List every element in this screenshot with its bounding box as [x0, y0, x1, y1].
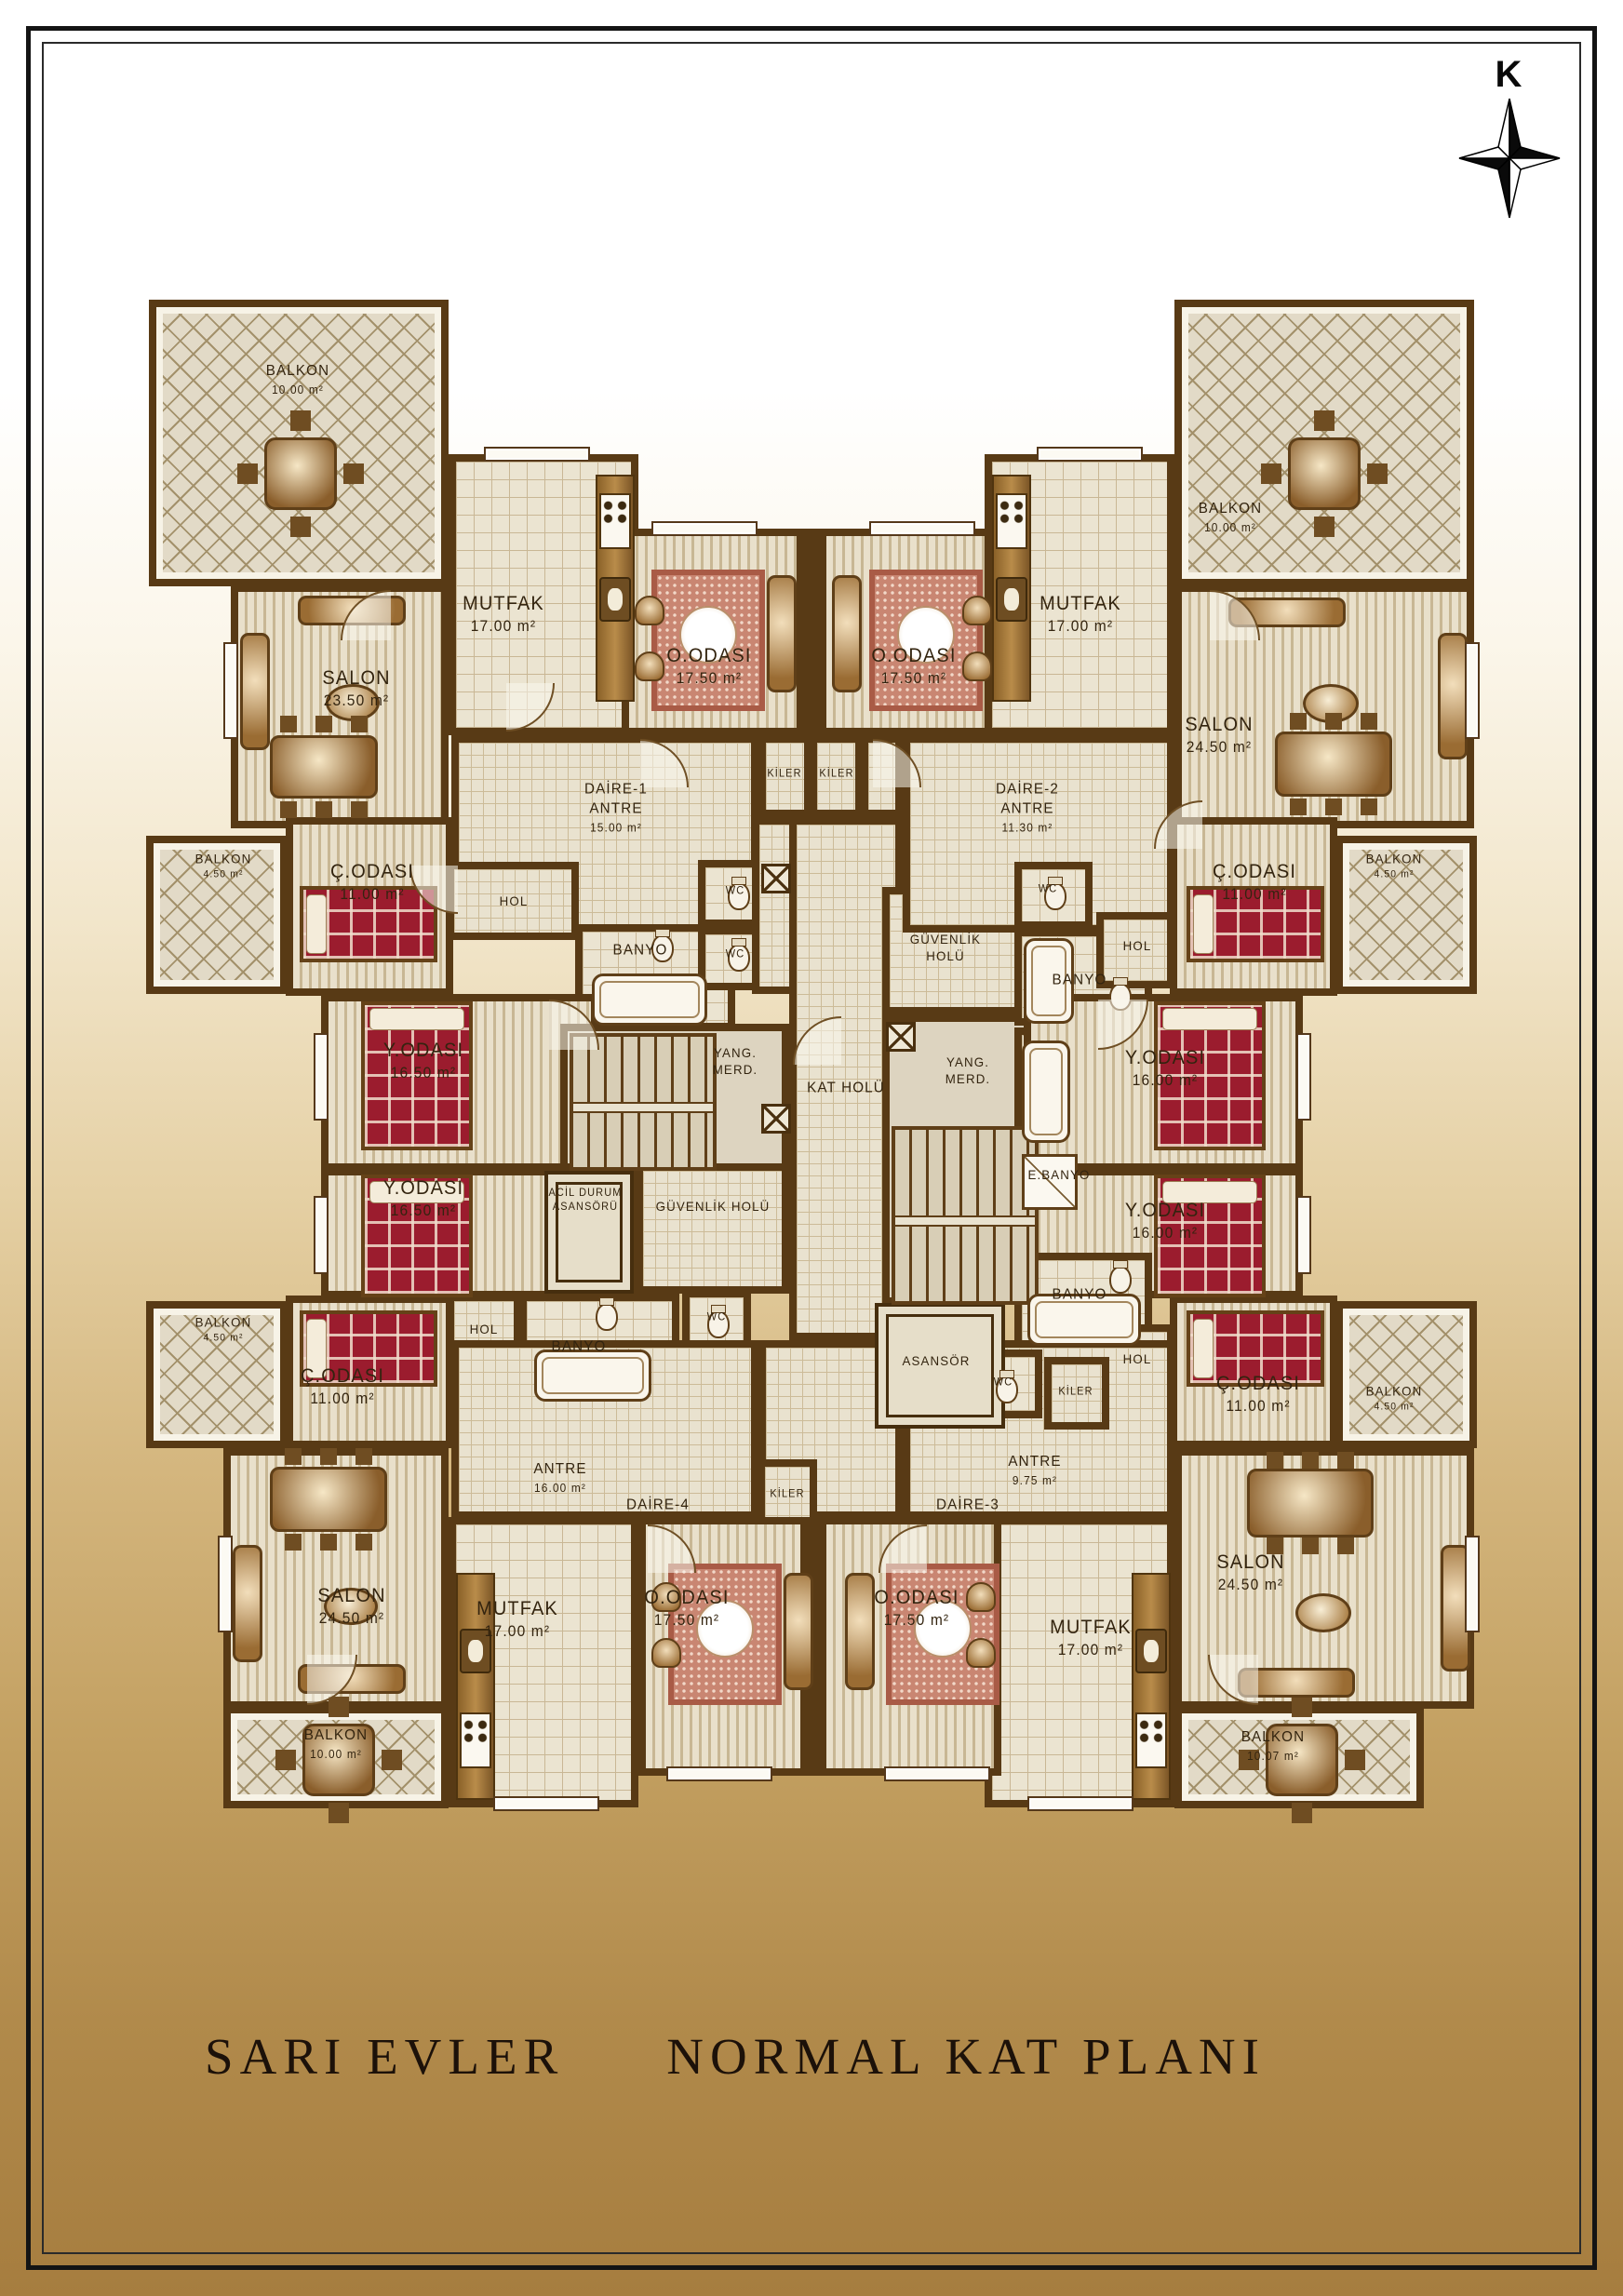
- room-label-wc-d4: WC: [707, 1311, 726, 1325]
- sofa: [784, 1573, 813, 1690]
- room-label-kat-holu: KAT HOLÜ: [807, 1080, 885, 1099]
- stove: [460, 1712, 491, 1768]
- room-label-mutfak-tl: MUTFAK17.00 m²: [463, 591, 544, 638]
- bathtub: [592, 973, 707, 1026]
- room-label-guvenlik-r: GÜVENLİKHOLÜ: [910, 931, 981, 964]
- room-label-salon-bl: SALON24.50 m²: [317, 1583, 385, 1630]
- room-label-y-odasi-r2: Y.ODASI16.00 m²: [1125, 1198, 1205, 1244]
- stove: [996, 493, 1027, 549]
- room-label-c-odasi-l2: Ç.ODASI11.00 m²: [301, 1363, 384, 1410]
- compass-star-icon: [1454, 93, 1565, 223]
- room-label-kiler-4: KİLER: [770, 1488, 804, 1502]
- room-label-wc-d1a: WC: [726, 885, 744, 899]
- carpet: [651, 570, 765, 711]
- room-label-hol-d1: HOL: [500, 893, 529, 909]
- window: [869, 521, 975, 536]
- room-label-salon-br: SALON24.50 m²: [1216, 1550, 1284, 1596]
- room-balkon-r2: [1335, 1301, 1477, 1448]
- armchair: [651, 1638, 681, 1668]
- window: [666, 1766, 772, 1781]
- room-label-balkon-r1: BALKON4.50 m²: [1366, 850, 1423, 880]
- room-label-antre-1: DAİRE-1ANTRE15.00 m²: [584, 781, 648, 836]
- room-label-daire-3: DAİRE-3: [936, 1497, 999, 1516]
- room-label-o-odasi-br: O.ODASI17.50 m²: [874, 1585, 959, 1631]
- armchair: [962, 596, 992, 625]
- room-label-hol-d3: HOL: [1123, 1350, 1152, 1367]
- room-label-asansor: ASANSÖR: [902, 1352, 970, 1369]
- room-label-y-odasi-r1: Y.ODASI16.00 m²: [1125, 1045, 1205, 1092]
- armchair: [966, 1582, 996, 1612]
- room-label-balkon-l2: BALKON4.50 m²: [195, 1313, 252, 1344]
- toilet: [1109, 1266, 1132, 1294]
- salon-dining-table: [1247, 1469, 1374, 1537]
- stove: [599, 493, 631, 549]
- room-label-salon-tr: SALON24.50 m²: [1185, 712, 1253, 759]
- window: [1296, 1033, 1311, 1121]
- window: [1465, 642, 1480, 739]
- room-label-daire-4: DAİRE-4: [626, 1497, 690, 1516]
- kitchen-sink: [599, 577, 631, 622]
- room-label-banyo-d1: BANYO: [613, 942, 668, 961]
- room-label-mutfak-br: MUTFAK17.00 m²: [1050, 1615, 1132, 1661]
- dining-table: [1288, 437, 1361, 510]
- room-label-c-odasi-l1: Ç.ODASI11.00 m²: [330, 859, 414, 906]
- room-label-wc-d3: WC: [994, 1376, 1013, 1390]
- kitchen-sink: [996, 577, 1027, 622]
- room-label-balkon-tr: BALKON10.00 m²: [1199, 500, 1263, 535]
- window: [884, 1766, 990, 1781]
- window: [1465, 1536, 1480, 1632]
- sofa: [767, 575, 797, 692]
- room-label-yang-merd-r: YANG.MERD.: [946, 1054, 991, 1087]
- stove: [1135, 1712, 1167, 1768]
- room-label-banyo-d3: BANYO: [1053, 1286, 1107, 1306]
- poster-canvas: K: [0, 0, 1623, 2296]
- room-label-kiler-3: KİLER: [1058, 1386, 1093, 1400]
- title-project: SARI EVLER: [205, 2027, 564, 2086]
- room-label-y-odasi-l1: Y.ODASI16.50 m²: [383, 1038, 463, 1084]
- carpet: [869, 570, 983, 711]
- room-label-kiler-1: KİLER: [767, 768, 801, 782]
- armchair: [962, 651, 992, 681]
- room-label-antre-3: ANTRE9.75 m²: [1008, 1453, 1061, 1488]
- salon-dining-table: [1275, 732, 1392, 797]
- room-label-wc-d2: WC: [1039, 883, 1057, 897]
- bathtub: [1022, 1041, 1070, 1143]
- sofa: [240, 633, 270, 750]
- room-label-balkon-tl: BALKON10.00 m²: [266, 362, 330, 397]
- window: [493, 1796, 599, 1811]
- room-label-kiler-2: KİLER: [819, 768, 853, 782]
- window: [1296, 1196, 1311, 1274]
- room-guvenlik-holu-l: [636, 1163, 789, 1294]
- sofa: [832, 575, 862, 692]
- coffee-table: [1303, 684, 1359, 723]
- window: [314, 1196, 329, 1274]
- stairs-west: [570, 1033, 717, 1171]
- window: [314, 1033, 329, 1121]
- room-label-acil-asansor: ACİL DURUMASANSÖRÜ: [549, 1187, 623, 1215]
- room-label-antre-4: ANTRE16.00 m²: [533, 1460, 586, 1496]
- salon-dining-table: [270, 735, 378, 799]
- room-label-antre-2: DAİRE-2ANTRE11.30 m²: [996, 781, 1059, 836]
- window: [1037, 447, 1143, 462]
- room-label-c-odasi-r1: Ç.ODASI11.00 m²: [1213, 859, 1296, 906]
- room-label-balkon-r2: BALKON4.50 m²: [1366, 1382, 1423, 1413]
- north-compass: K: [1450, 56, 1569, 223]
- stairs-east: [892, 1126, 1039, 1305]
- window: [651, 521, 758, 536]
- sofa: [233, 1545, 262, 1662]
- room-label-c-odasi-r2: Ç.ODASI11.00 m²: [1216, 1371, 1300, 1417]
- room-label-salon-tl: SALON23.50 m²: [322, 665, 390, 712]
- room-label-y-odasi-l2: Y.ODASI16.50 m²: [383, 1175, 463, 1222]
- room-label-o-odasi-bl: O.ODASI17.50 m²: [644, 1585, 729, 1631]
- coffee-table: [1295, 1593, 1351, 1632]
- room-label-e-banyo: E.BANYO: [1027, 1166, 1090, 1183]
- plan-title: SARI EVLER NORMAL KAT PLANI: [56, 2027, 1415, 2086]
- title-plan-type: NORMAL KAT PLANI: [666, 2027, 1266, 2086]
- room-label-yang-merd-l: YANG.MERD.: [713, 1044, 758, 1078]
- room-label-wc-d1b: WC: [726, 948, 744, 962]
- sofa: [1438, 633, 1468, 759]
- north-letter: K: [1450, 56, 1569, 93]
- salon-dining-table: [270, 1467, 387, 1532]
- duct-box: [761, 864, 791, 893]
- room-label-banyo-d2: BANYO: [1053, 972, 1107, 991]
- kitchen-sink: [1135, 1629, 1167, 1673]
- duct-box: [886, 1022, 916, 1052]
- wall-fill: [800, 529, 823, 735]
- window: [484, 447, 590, 462]
- room-label-guvenlik-l: GÜVENLİK HOLÜ: [656, 1198, 771, 1215]
- window: [1027, 1796, 1133, 1811]
- armchair: [635, 651, 664, 681]
- toilet: [596, 1303, 618, 1331]
- room-label-hol-d2: HOL: [1123, 937, 1152, 954]
- window: [218, 1536, 233, 1632]
- room-label-hol-d4: HOL: [470, 1321, 499, 1337]
- room-label-o-odasi-tr: O.ODASI17.50 m²: [871, 643, 956, 690]
- room-label-banyo-d4: BANYO: [552, 1338, 607, 1358]
- room-label-mutfak-bl: MUTFAK17.00 m²: [476, 1596, 558, 1643]
- room-label-balkon-l1: BALKON4.50 m²: [195, 850, 252, 880]
- armchair: [966, 1638, 996, 1668]
- dining-table: [264, 437, 337, 510]
- room-label-balkon-br: BALKON10.07 m²: [1241, 1728, 1306, 1764]
- window: [223, 642, 238, 739]
- room-label-mutfak-tr: MUTFAK17.00 m²: [1040, 591, 1121, 638]
- room-label-balkon-bl: BALKON10.00 m²: [304, 1726, 369, 1762]
- room-label-o-odasi-tl: O.ODASI17.50 m²: [666, 643, 751, 690]
- duct-box: [761, 1104, 791, 1134]
- armchair: [635, 596, 664, 625]
- sofa: [845, 1573, 875, 1690]
